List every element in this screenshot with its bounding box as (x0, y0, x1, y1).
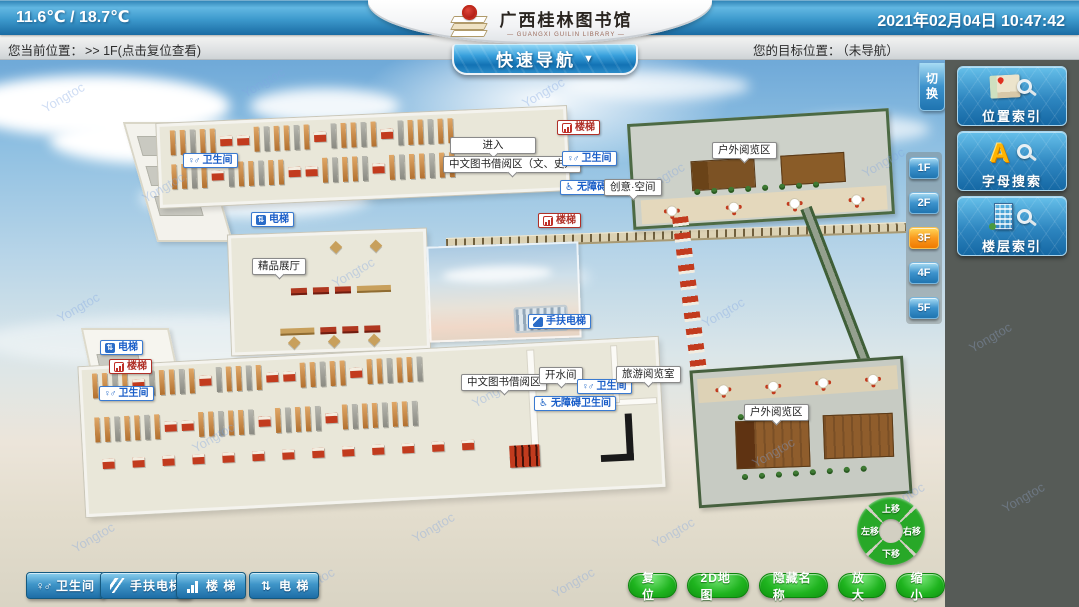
floor-button-4f[interactable]: 4F (909, 262, 939, 284)
letter-search-button[interactable]: A 字母搜索 (957, 131, 1067, 191)
label-chinese-books-lit-hist[interactable]: 中文图书借阅区（文、史） (443, 156, 581, 173)
library-title: 广西桂林图书馆 (500, 6, 633, 31)
stairs-icon (543, 216, 553, 226)
floor-button-5f[interactable]: 5F (909, 297, 939, 319)
app-window: 11.6℃ / 18.7℃ 2021年02月04日 10:47:42 您当前位置… (0, 0, 1079, 607)
magnifier-icon (1017, 79, 1032, 94)
label-restroom-nw[interactable]: ♀♂卫生间 (183, 153, 238, 168)
floor-button-1f[interactable]: 1F (909, 157, 939, 179)
label-text: 楼梯 (575, 123, 595, 133)
letter-a-icon: A (990, 138, 1010, 169)
label-outdoor-reading-n[interactable]: 户外阅览区 (712, 142, 777, 159)
current-location-value[interactable]: >> 1F(点击复位查看) (85, 44, 201, 58)
elevator-icon: ⇅ (259, 578, 274, 593)
label-text: 卫生间 (582, 154, 612, 164)
label-stairs-n[interactable]: 楼梯 (557, 120, 600, 135)
label-text: 开水间 (545, 370, 577, 381)
label-text: 精品展厅 (258, 261, 300, 272)
label-creative-space[interactable]: 创意·空间 (604, 179, 662, 196)
building-icon (994, 203, 1013, 230)
restroom-button[interactable]: ♀♂ 卫生间 (26, 572, 105, 599)
pan-down-button[interactable]: 下移 (882, 547, 900, 560)
stairs-icon (562, 123, 572, 133)
magnifier-icon (1017, 144, 1032, 159)
stairs-icon (186, 578, 201, 593)
label-text: 进入 (483, 140, 504, 151)
pan-up-button[interactable]: 上移 (882, 502, 900, 515)
label-boutique-hall[interactable]: 精品展厅 (252, 258, 306, 275)
label-elevator-c[interactable]: ⇅电梯 (251, 212, 294, 227)
label-text: 手扶电梯 (546, 317, 586, 327)
quick-nav-button[interactable]: 快速导航 ▼ (452, 44, 638, 75)
chevron-down-icon: ▼ (583, 53, 594, 65)
target-location-value: （未导航） (843, 44, 899, 58)
map-canvas[interactable]: YongtocYongtocYongtocYongtocYongtocYongt… (0, 60, 945, 607)
label-text: 卫生间 (597, 382, 627, 392)
restroom-icon: ♀♂ (188, 156, 200, 165)
pan-compass[interactable]: 上移 下移 左移 右移 (857, 497, 925, 565)
library-subtitle: — GUANGXI GUILIN LIBRARY — (500, 32, 633, 38)
label-text: 旅游阅览室 (622, 369, 675, 380)
escalator-icon (533, 317, 543, 327)
library-logo-icon (448, 7, 490, 37)
current-location-label: 您当前位置： (8, 44, 83, 58)
label-text: 卫生间 (119, 389, 149, 399)
label-restroom-n[interactable]: ♀♂卫生间 (562, 151, 617, 166)
label-text: 创意·空间 (610, 182, 656, 193)
switch-button[interactable]: 切换 (919, 63, 945, 111)
restroom-icon: ♀♂ (36, 578, 51, 593)
floor-button-3f[interactable]: 3F (909, 227, 939, 249)
map-controls: 复位2D地图隐藏名称放大缩小 (628, 573, 945, 598)
label-text: 电梯 (118, 343, 138, 353)
stairs-button[interactable]: 楼 梯 (176, 572, 246, 599)
right-panel: 位置索引 A 字母搜索 楼层索引 Yongtoc Yongtoc (945, 60, 1079, 607)
magnifier-icon (1017, 209, 1032, 224)
elevator-icon: ⇅ (105, 343, 115, 353)
label-text: 无障碍卫生间 (551, 399, 611, 409)
zoom-out-button[interactable]: 缩小 (896, 573, 945, 598)
floor-selector: 1F2F3F4F5F (906, 152, 942, 324)
current-location: 您当前位置：>> 1F(点击复位查看) (8, 40, 203, 59)
floor-index-button[interactable]: 楼层索引 (957, 196, 1067, 256)
reset-button[interactable]: 复位 (628, 573, 677, 598)
label-enter[interactable]: 进入 (450, 137, 536, 154)
label-text: 楼梯 (127, 362, 147, 372)
label-text: 户外阅览区 (718, 145, 771, 156)
label-text: 楼梯 (556, 216, 576, 226)
label-text: 中文图书借阅区 (467, 377, 541, 388)
label-chinese-books-s[interactable]: 中文图书借阅区 (461, 374, 547, 391)
stairs-icon (114, 362, 124, 372)
label-text: 中文图书借阅区（文、史） (449, 159, 575, 170)
label-outdoor-reading-s[interactable]: 户外阅览区 (744, 404, 809, 421)
zoom-in-button[interactable]: 放大 (838, 573, 887, 598)
elevator-icon: ⇅ (256, 215, 266, 225)
label-water-room[interactable]: 开水间 (539, 367, 583, 384)
temperature-display: 11.6℃ / 18.7℃ (16, 7, 129, 27)
restroom-icon: ♀♂ (582, 382, 594, 391)
target-location-label: 您的目标位置： (753, 44, 841, 58)
elevator-button[interactable]: ⇅ 电 梯 (249, 572, 319, 599)
label-stairs-c[interactable]: 楼梯 (538, 213, 581, 228)
location-index-button[interactable]: 位置索引 (957, 66, 1067, 126)
label-escalator-c[interactable]: 手扶电梯 (528, 314, 591, 329)
map-2d-button[interactable]: 2D地图 (687, 573, 749, 598)
label-elevator-sw[interactable]: ⇅电梯 (100, 340, 143, 355)
pan-left-button[interactable]: 左移 (861, 525, 879, 538)
label-barrier-free-restroom[interactable]: ♿无障碍卫生间 (534, 396, 616, 411)
datetime-display: 2021年02月04日 10:47:42 (877, 7, 1065, 31)
wheelchair-icon: ♿ (565, 183, 574, 193)
target-location: 您的目标位置：（未导航） (753, 40, 901, 59)
restroom-icon: ♀♂ (104, 389, 116, 398)
label-stairs-sw[interactable]: 楼梯 (109, 359, 152, 374)
map-pin-icon (989, 74, 1020, 99)
label-text: 电梯 (269, 215, 289, 225)
restroom-icon: ♀♂ (567, 154, 579, 163)
pan-right-button[interactable]: 右移 (903, 525, 921, 538)
wheelchair-icon: ♿ (539, 399, 548, 409)
hide-names-button[interactable]: 隐藏名称 (759, 573, 828, 598)
label-text: 卫生间 (203, 156, 233, 166)
label-restroom-sw[interactable]: ♀♂卫生间 (99, 386, 154, 401)
label-text: 户外阅览区 (750, 407, 803, 418)
escalator-icon (110, 578, 125, 593)
floor-button-2f[interactable]: 2F (909, 192, 939, 214)
label-travel-reading-room[interactable]: 旅游阅览室 (616, 366, 681, 383)
